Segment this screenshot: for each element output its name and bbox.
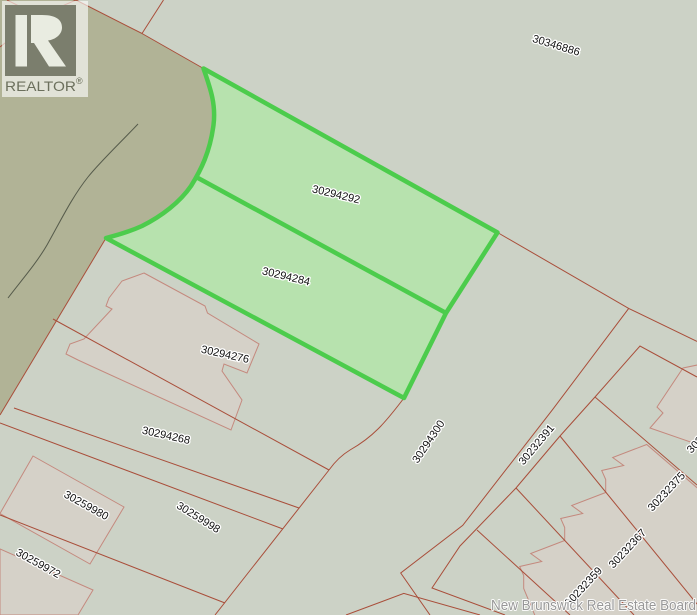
svg-text:REALTOR: REALTOR: [5, 78, 76, 94]
svg-text:New Brunswick Real Estate Boar: New Brunswick Real Estate Board: [491, 597, 696, 614]
svg-text:®: ®: [76, 76, 83, 86]
